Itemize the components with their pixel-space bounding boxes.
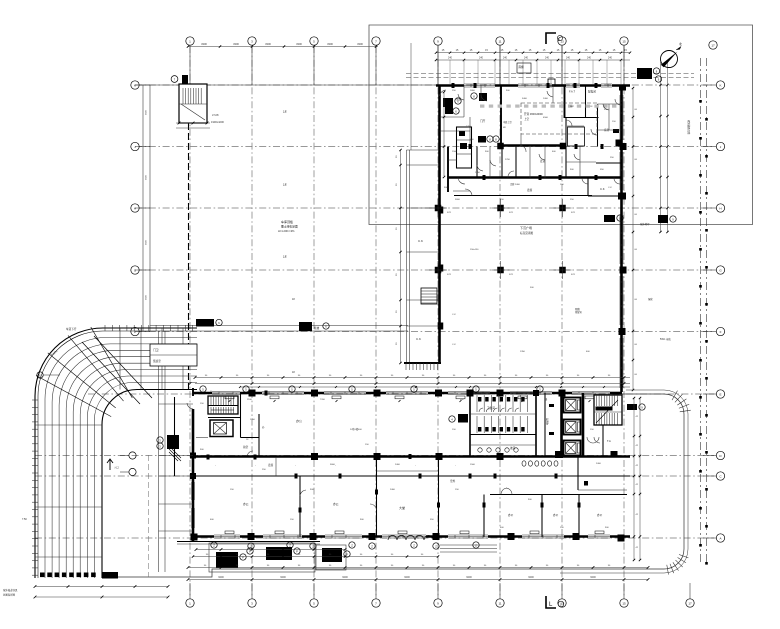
svg-text:11: 11 <box>498 602 501 606</box>
svg-text:150x150: 150x150 <box>470 249 479 251</box>
svg-text:3600: 3600 <box>330 464 336 466</box>
svg-text:室外地坪: 室外地坪 <box>640 222 650 226</box>
svg-text:2100: 2100 <box>247 399 253 401</box>
svg-text:6200: 6200 <box>280 576 286 579</box>
svg-text:车道下行: 车道下行 <box>66 327 77 331</box>
svg-text:3500: 3500 <box>146 239 148 245</box>
svg-text:240: 240 <box>545 56 550 59</box>
svg-text:240: 240 <box>587 56 592 59</box>
svg-text:1500: 1500 <box>470 464 476 466</box>
svg-text:H=1.200 i=2%: H=1.200 i=2% <box>278 229 295 233</box>
svg-text:4500: 4500 <box>543 117 549 119</box>
svg-text:门厅: 门厅 <box>480 119 486 123</box>
svg-text:3500: 3500 <box>146 174 148 180</box>
svg-text:下沉广场: 下沉广场 <box>520 225 532 230</box>
svg-text:6200: 6200 <box>466 576 472 579</box>
svg-text:2400: 2400 <box>596 463 602 465</box>
svg-text:办公: 办公 <box>508 513 514 517</box>
svg-text:1F.: 1F. <box>283 255 287 259</box>
svg-text:办公: 办公 <box>296 418 302 423</box>
svg-text:走廊: 走廊 <box>527 188 533 192</box>
svg-text:5%C.市政: 5%C.市政 <box>660 337 671 341</box>
svg-text:7.50: 7.50 <box>22 518 27 521</box>
svg-text:走廊: 走廊 <box>268 463 274 467</box>
svg-text:值班室: 值班室 <box>153 359 161 363</box>
svg-text:车库顶板: 车库顶板 <box>281 219 293 224</box>
svg-text:2700: 2700 <box>505 159 511 161</box>
svg-text:开洞 3600x9000: 开洞 3600x9000 <box>524 112 543 116</box>
svg-text:2400: 2400 <box>390 489 396 491</box>
svg-text:2工E: 2工E <box>466 125 471 128</box>
svg-text:F.A.T: F.A.T <box>569 90 575 94</box>
svg-text:11: 11 <box>498 40 501 44</box>
svg-text:总图及详图: 总图及详图 <box>3 593 16 597</box>
svg-text:上空: 上空 <box>524 117 530 121</box>
svg-text:3300: 3300 <box>201 42 207 46</box>
svg-text:FAT: FAT <box>570 105 575 108</box>
svg-text:240: 240 <box>479 56 484 59</box>
svg-text:3500: 3500 <box>146 109 148 115</box>
svg-text:17: 17 <box>688 602 692 606</box>
svg-text:1500: 1500 <box>452 151 458 153</box>
svg-text:3600: 3600 <box>455 199 461 201</box>
svg-text:F: F <box>720 330 722 334</box>
svg-text:C.K: C.K <box>452 314 456 316</box>
svg-text:A: A <box>719 537 721 541</box>
svg-text:LT-08: LT-08 <box>212 113 219 117</box>
svg-text:入口: 入口 <box>114 465 119 469</box>
svg-text:1900x4200: 1900x4200 <box>211 120 224 124</box>
svg-text:坡道: 坡道 <box>510 446 516 450</box>
svg-text:办公: 办公 <box>553 513 559 517</box>
svg-text:6200: 6200 <box>404 576 410 579</box>
svg-text:3300: 3300 <box>357 42 363 46</box>
svg-text:C.K: C.K <box>608 187 612 189</box>
svg-text:P: P <box>242 555 244 559</box>
svg-text:3300: 3300 <box>233 42 239 46</box>
svg-text:E: E <box>719 393 721 397</box>
svg-text:前室: 前室 <box>243 445 249 449</box>
svg-text:配电间: 配电间 <box>588 90 596 94</box>
svg-text:1350: 1350 <box>475 172 481 174</box>
svg-text:2400: 2400 <box>395 464 401 466</box>
svg-text:H: H <box>719 207 721 211</box>
svg-text:3500: 3500 <box>146 294 148 300</box>
svg-text:K: K <box>134 84 136 88</box>
svg-text:预留: 预留 <box>575 307 580 311</box>
svg-text:15: 15 <box>622 40 626 44</box>
svg-text:室外: 室外 <box>450 479 456 483</box>
svg-text:240: 240 <box>524 56 529 59</box>
svg-text:P: P <box>249 549 251 553</box>
svg-text:C.K: C.K <box>418 239 423 243</box>
svg-text:6200: 6200 <box>528 576 534 579</box>
svg-text:15: 15 <box>622 602 626 606</box>
svg-text:240: 240 <box>448 56 453 59</box>
svg-text:雨棚: 雨棚 <box>519 65 525 69</box>
svg-text:绿化: 绿化 <box>648 297 653 301</box>
svg-text:7200: 7200 <box>320 399 326 401</box>
svg-text:17: 17 <box>711 44 715 48</box>
svg-text:6200: 6200 <box>590 576 596 579</box>
svg-text:240: 240 <box>566 56 571 59</box>
svg-text:办公: 办公 <box>333 502 339 506</box>
svg-text:2400: 2400 <box>543 98 549 100</box>
svg-text:T.A: T.A <box>607 439 611 443</box>
svg-text:6200: 6200 <box>342 576 348 579</box>
svg-text:C.K: C.K <box>452 344 456 346</box>
svg-text:门卫: 门卫 <box>153 348 159 352</box>
svg-text:1350: 1350 <box>520 351 526 353</box>
svg-text:覆土绿化屋面: 覆土绿化屋面 <box>281 225 298 229</box>
svg-text:1350: 1350 <box>250 419 256 421</box>
svg-text:H: H <box>134 207 136 211</box>
svg-text:C.K: C.K <box>416 337 421 341</box>
svg-text:C.K: C.K <box>600 187 605 191</box>
svg-text:办公: 办公 <box>597 513 603 517</box>
svg-text:3300: 3300 <box>265 42 271 46</box>
svg-text:标高见详图: 标高见详图 <box>520 231 533 235</box>
svg-text:P: P <box>296 549 298 553</box>
svg-text:3300: 3300 <box>296 42 302 46</box>
svg-text:1F.: 1F. <box>283 110 287 114</box>
svg-text:找坡: 找坡 <box>314 326 320 330</box>
svg-text:6200: 6200 <box>218 576 224 579</box>
svg-text:规划道路红线: 规划道路红线 <box>687 120 691 135</box>
svg-text:室外坡道详见: 室外坡道详见 <box>3 588 18 592</box>
svg-text:5400: 5400 <box>522 98 528 100</box>
svg-text:1F.: 1F. <box>283 183 287 187</box>
svg-text:1800: 1800 <box>470 90 476 92</box>
svg-text:P: P <box>346 552 348 556</box>
svg-text:电梯厅: 电梯厅 <box>545 417 549 425</box>
svg-text:K: K <box>719 84 721 88</box>
svg-text:大堂: 大堂 <box>399 505 405 510</box>
svg-text:240: 240 <box>503 56 508 59</box>
svg-text:北: 北 <box>679 41 682 46</box>
svg-text:240: 240 <box>608 56 613 59</box>
svg-text:办公: 办公 <box>243 502 249 506</box>
svg-text:3300: 3300 <box>327 42 333 46</box>
